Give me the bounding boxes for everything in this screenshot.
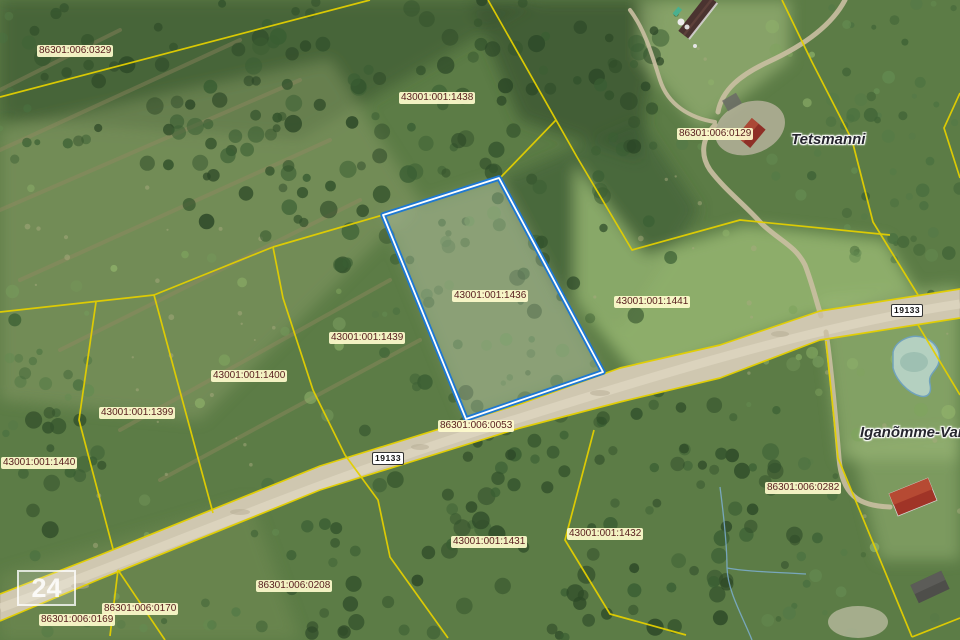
satellite-map-image	[0, 0, 960, 640]
map-canvas[interactable]: 24 86301:006:032943001:001:143886301:006…	[0, 0, 960, 640]
pond-shallow	[900, 352, 928, 372]
white-object	[685, 25, 690, 30]
sandy-clearing	[828, 606, 888, 638]
white-object	[678, 19, 685, 26]
white-object	[693, 44, 697, 48]
